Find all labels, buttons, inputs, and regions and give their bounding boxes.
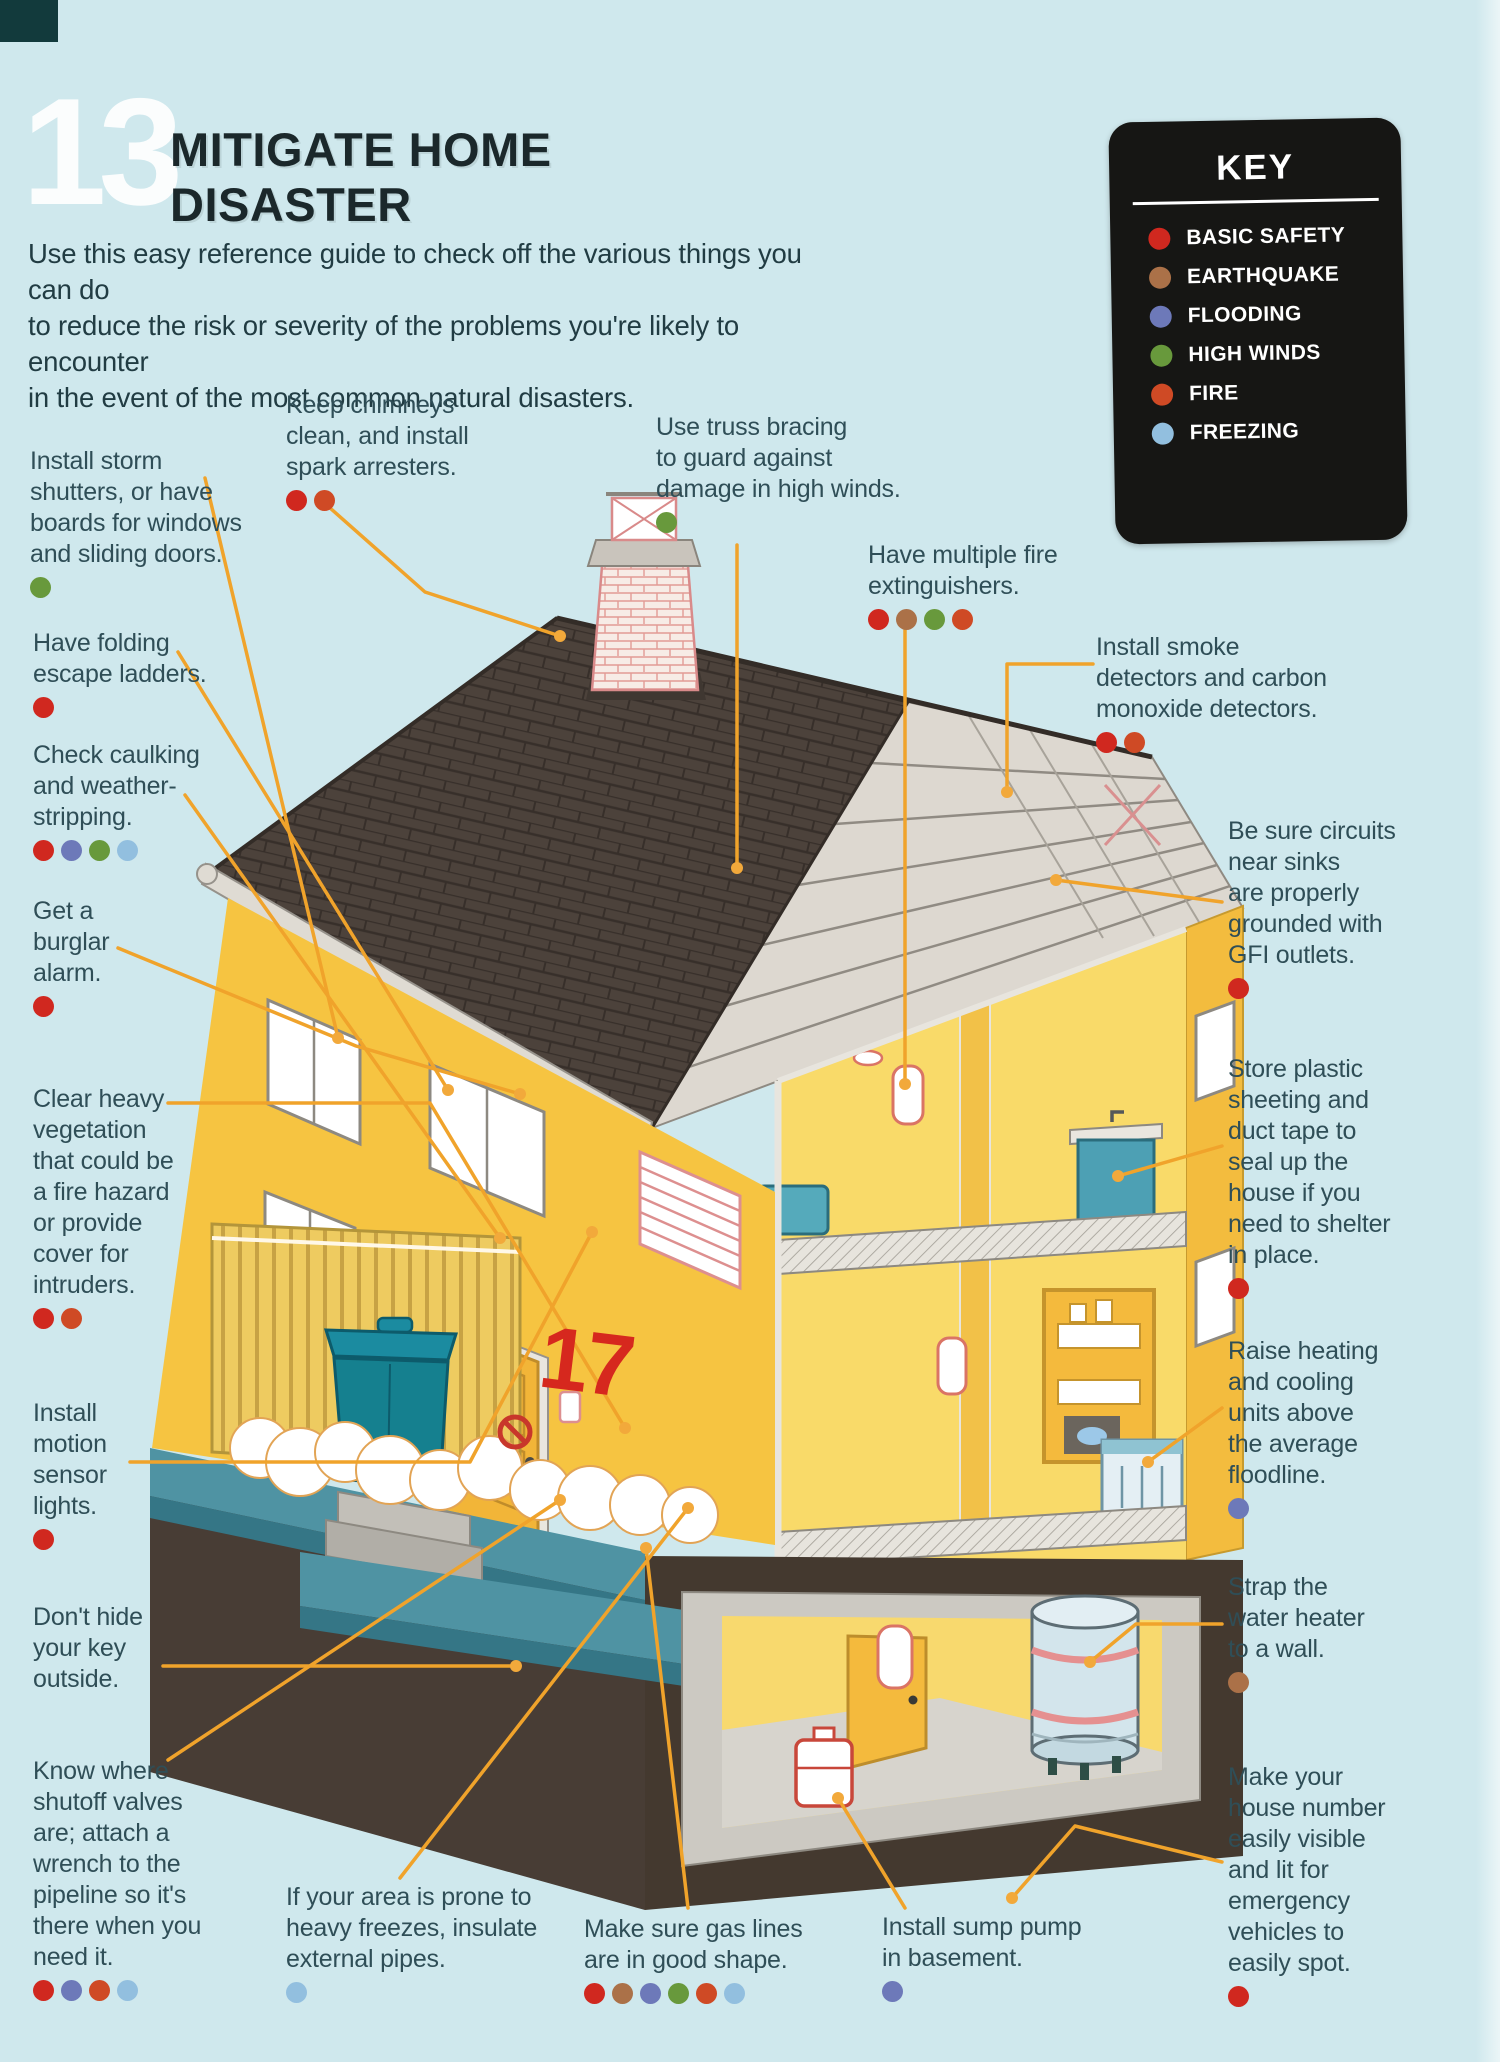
category-dot-flooding [61,840,82,861]
fire-extinguisher-icon [938,1338,966,1394]
key-item: EARTHQUAKE [1149,261,1403,289]
category-dot-high_winds [924,609,945,630]
category-dot-flooding [1150,306,1172,328]
category-dot-flooding [882,1981,903,2002]
callout-text: Clear heavy vegetation that could be a f… [33,1084,233,1301]
key-item-label: FREEZING [1190,419,1300,445]
callout-text: Install storm shutters, or have boards f… [30,446,260,570]
callout-text: Install motion sensor lights. [33,1398,193,1522]
category-dot-fire [696,1983,717,2004]
callout-text: Have multiple fire extinguishers. [868,540,1128,602]
callout-dots [1228,1278,1458,1299]
key-item: BASIC SAFETY [1148,222,1402,250]
key-item: HIGH WINDS [1150,339,1404,367]
category-dot-basic [33,996,54,1017]
category-dot-basic [1228,1986,1249,2007]
callout-dots [1228,978,1458,999]
key-divider [1133,198,1379,205]
callout-text: Be sure circuits near sinks are properly… [1228,816,1458,971]
category-dot-earthquake [1149,267,1171,289]
category-dot-freezing [117,840,138,861]
intro-paragraph: Use this easy reference guide to check o… [28,236,818,416]
callout-text: Strap the water heater to a wall. [1228,1572,1448,1665]
callout-dots [33,840,263,861]
key-title: KEY [1109,145,1402,190]
category-dot-basic [1228,978,1249,999]
category-dot-basic [1096,732,1117,753]
callout-sump-pump: Install sump pump in basement. [882,1912,1162,2002]
page-title: MITIGATE HOME DISASTER [170,123,552,232]
callout-dots [1096,732,1406,753]
callout-caulking: Check caulking and weather- stripping. [33,740,263,861]
callout-dots [868,609,1128,630]
callout-dots [656,512,936,533]
category-dot-flooding [61,1980,82,2001]
callout-dots [286,490,536,511]
fire-extinguisher-icon [878,1626,912,1688]
key-item: FLOODING [1150,300,1404,328]
interior-wall [960,1002,990,1536]
callout-chimneys: Keep chimneys clean, and install spark a… [286,390,536,511]
callout-gas-lines: Make sure gas lines are in good shape. [584,1914,884,2004]
category-dot-fire [1124,732,1145,753]
fire-extinguisher-icon [893,1066,923,1124]
category-dot-fire [1151,383,1173,405]
callout-folding-ladders: Have folding escape ladders. [33,628,263,718]
category-dot-freezing [117,1980,138,2001]
category-dot-basic [286,490,307,511]
house-number-17: 17 [535,1313,637,1412]
callout-dots [33,1529,193,1550]
callout-dots [33,697,263,718]
callout-text: Get a burglar alarm. [33,896,213,989]
category-dot-earthquake [1228,1672,1249,1693]
callout-shutoff-valves: Know where shutoff valves are; attach a … [33,1756,273,2001]
page-edge-shading [1476,0,1500,2062]
category-dot-basic [868,609,889,630]
callout-truss-bracing: Use truss bracing to guard against damag… [656,412,936,533]
callout-storm-shutters: Install storm shutters, or have boards f… [30,446,260,598]
category-dot-basic [33,840,54,861]
category-dot-basic [33,1980,54,2001]
callout-dots [33,1980,273,2001]
callout-water-heater: Strap the water heater to a wall. [1228,1572,1448,1693]
category-dot-basic [1148,228,1170,250]
page-title-line1: MITIGATE HOME [170,123,552,176]
callout-text: Have folding escape ladders. [33,628,263,690]
category-dot-high_winds [656,512,677,533]
callout-text: Check caulking and weather- stripping. [33,740,263,833]
category-dot-basic [33,697,54,718]
key-item: FREEZING [1152,417,1406,445]
category-dot-flooding [1228,1498,1249,1519]
category-dot-basic [1228,1278,1249,1299]
category-dot-flooding [640,1983,661,2004]
key-item-label: FIRE [1189,381,1239,406]
key-item: FIRE [1151,378,1405,406]
callout-house-number-visible: Make your house number easily visible an… [1228,1762,1448,2007]
callout-text: Use truss bracing to guard against damag… [656,412,936,505]
callout-dots [33,996,213,1017]
category-dot-earthquake [612,1983,633,2004]
callout-smoke-detectors: Install smoke detectors and carbon monox… [1096,632,1406,753]
category-dot-high_winds [89,840,110,861]
category-dot-fire [952,609,973,630]
callout-key-outside: Don't hide your key outside. [33,1602,213,1702]
water-heater [1032,1596,1138,1780]
category-dot-basic [33,1308,54,1329]
callout-text: Make sure gas lines are in good shape. [584,1914,884,1976]
callout-text: Store plastic sheeting and duct tape to … [1228,1054,1458,1271]
category-dot-fire [89,1980,110,2001]
callout-dots [584,1983,884,2004]
category-dot-high_winds [668,1983,689,2004]
key-item-label: BASIC SAFETY [1186,223,1345,250]
callout-plastic-sheeting: Store plastic sheeting and duct tape to … [1228,1054,1458,1299]
category-dot-fire [314,490,335,511]
callout-dots [1228,1498,1448,1519]
callout-dots [1228,1672,1448,1693]
category-dot-earthquake [896,609,917,630]
callout-motion-lights: Install motion sensor lights. [33,1398,193,1550]
category-dot-freezing [1152,422,1174,444]
callout-dots [30,577,260,598]
callout-text: Don't hide your key outside. [33,1602,213,1695]
key-item-label: FLOODING [1188,302,1302,328]
callout-text: Raise heating and cooling units above th… [1228,1336,1448,1491]
callout-heating-cooling: Raise heating and cooling units above th… [1228,1336,1448,1519]
callout-text: Install smoke detectors and carbon monox… [1096,632,1406,725]
page-title-line2: DISASTER [170,178,412,231]
callout-burglar-alarm: Get a burglar alarm. [33,896,213,1017]
callout-vegetation: Clear heavy vegetation that could be a f… [33,1084,233,1329]
category-dot-high_winds [1150,344,1172,366]
chapter-number-stencil: 13 [22,76,175,228]
callout-dots [882,1981,1162,2002]
key-item-label: HIGH WINDS [1188,341,1321,367]
callout-text: Know where shutoff valves are; attach a … [33,1756,273,1973]
callout-dots [1228,1986,1448,2007]
category-dot-basic [33,1529,54,1550]
key-item-label: EARTHQUAKE [1187,263,1340,290]
key-list: BASIC SAFETYEARTHQUAKEFLOODINGHIGH WINDS… [1110,222,1406,446]
sump-pump [796,1728,852,1806]
callout-text: Keep chimneys clean, and install spark a… [286,390,536,483]
category-dot-freezing [286,1982,307,2003]
category-dot-high_winds [30,577,51,598]
callout-fire-extinguishers: Have multiple fire extinguishers. [868,540,1128,630]
category-dot-freezing [724,1983,745,2004]
infographic-page: 17 13 MITIGATE HOME DISASTER Use this ea… [0,0,1500,2062]
key-panel: KEY BASIC SAFETYEARTHQUAKEFLOODINGHIGH W… [1108,117,1407,544]
callout-text: Make your house number easily visible an… [1228,1762,1448,1979]
leader-chimney [330,508,560,636]
callout-text: Install sump pump in basement. [882,1912,1162,1974]
callout-dots [33,1308,233,1329]
callout-gfi-outlets: Be sure circuits near sinks are properly… [1228,816,1458,999]
category-dot-basic [584,1983,605,2004]
category-dot-fire [61,1308,82,1329]
